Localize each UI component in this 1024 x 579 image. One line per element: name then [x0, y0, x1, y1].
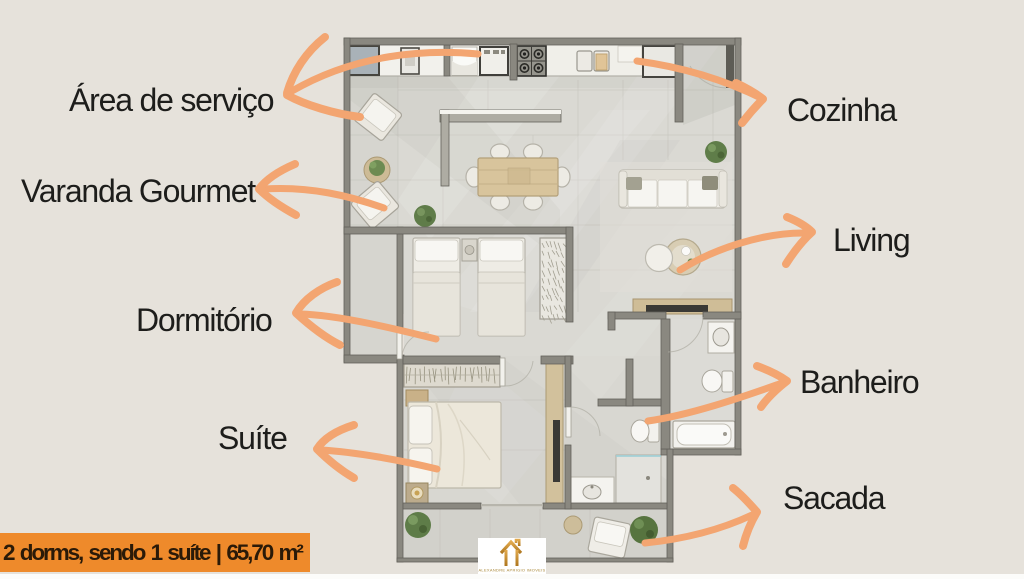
- svg-text:ALEXANDRE APRIGIO IMOVEIS: ALEXANDRE APRIGIO IMOVEIS: [478, 568, 545, 573]
